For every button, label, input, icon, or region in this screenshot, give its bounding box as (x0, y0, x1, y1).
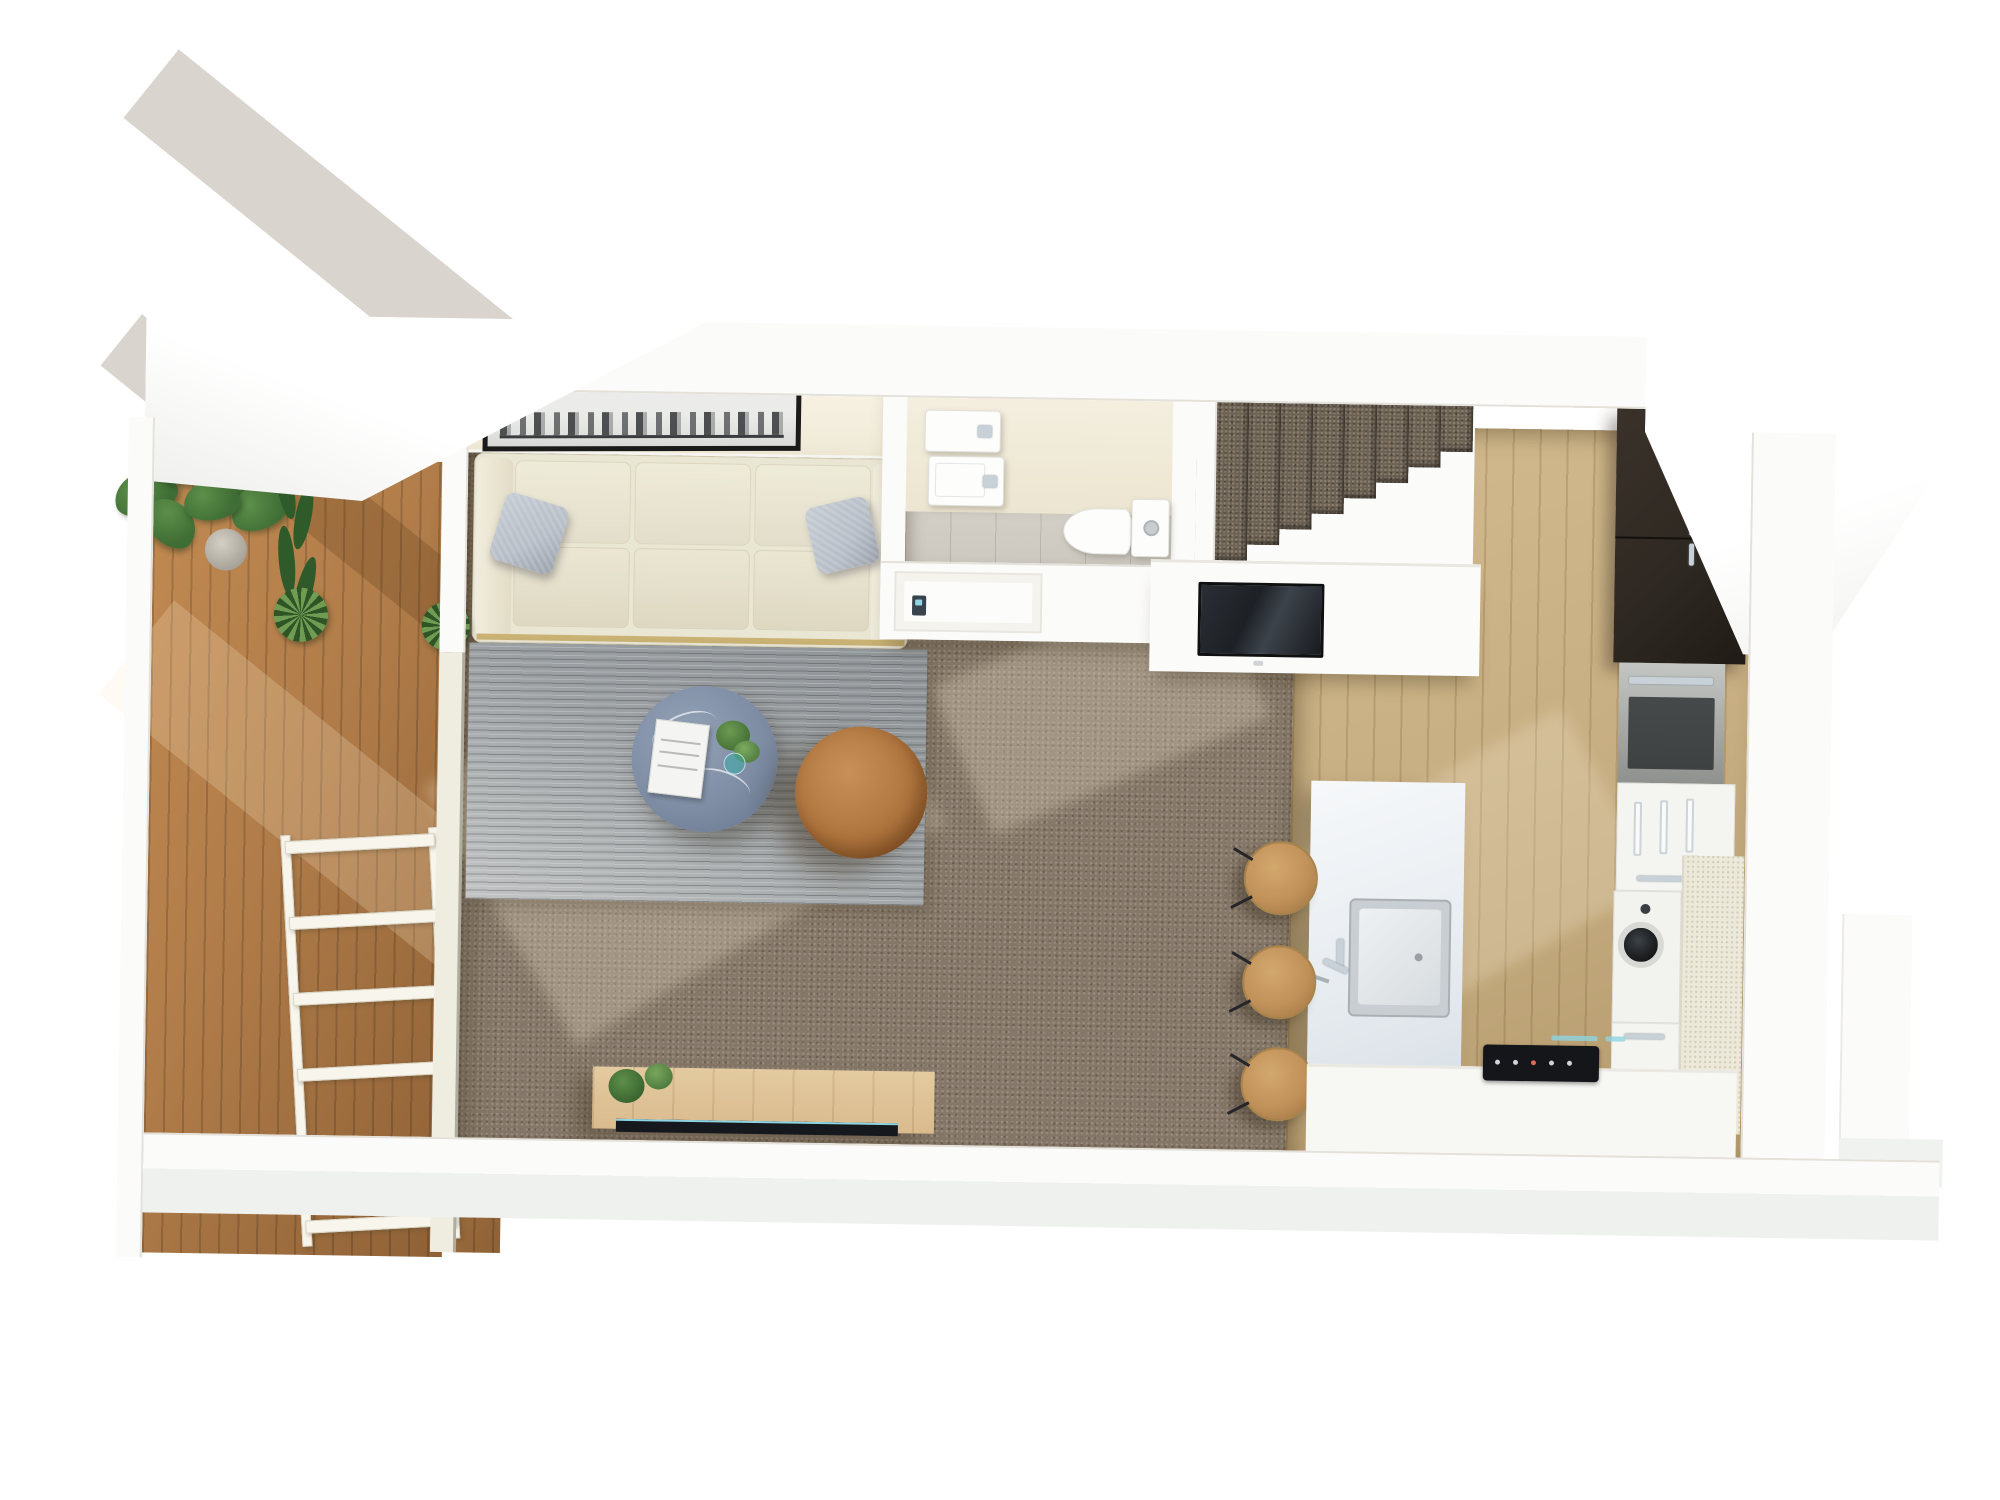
oven-glass (1628, 697, 1715, 770)
right-wall (1740, 433, 1836, 1179)
washer-control-icon (1640, 904, 1650, 914)
cooktop-control-icon (1567, 1061, 1572, 1066)
splashback-glint (1605, 1036, 1625, 1041)
basin-bowl (935, 463, 986, 498)
drain-icon (1415, 953, 1423, 961)
console-plant (644, 1063, 672, 1089)
washing-machine (1612, 890, 1682, 1023)
cooktop-control-icon (1531, 1060, 1536, 1065)
stair-step (1376, 405, 1409, 483)
cabinet-handle-icon (1689, 544, 1694, 566)
bathroom-south-wall (880, 561, 1195, 644)
induction-cooktop (1483, 1044, 1600, 1082)
cooktop-control-icon (1549, 1060, 1554, 1065)
sink-basin (1358, 908, 1441, 1005)
wall-basin-upper (925, 410, 1002, 453)
cabinet-handle-icon (1633, 802, 1642, 856)
island-sink (1348, 898, 1452, 1018)
floorplan-render: 3D floor plan render — studio apartment … (0, 0, 2000, 1500)
cabinet-handle-icon (1685, 799, 1694, 853)
right-outer-column (1839, 914, 1913, 1155)
wall-tv (1197, 582, 1324, 658)
media-console (592, 1066, 935, 1133)
under-counter-cabinet (1611, 1022, 1680, 1075)
faucet-icon (978, 425, 992, 437)
railing-bar (289, 909, 439, 930)
sofa-back-cushion (634, 462, 751, 546)
sofa-seat-cushion (633, 548, 750, 630)
table-vase (723, 752, 745, 774)
cooktop-control-icon (1513, 1060, 1518, 1065)
flush-button-icon (1143, 520, 1159, 536)
plant-pot (205, 528, 248, 571)
washer-door-icon (1618, 922, 1665, 969)
railing-bar (297, 1061, 447, 1082)
sofa (471, 452, 910, 649)
oven-handle-icon (1629, 677, 1713, 685)
hallway-bulkhead (1149, 559, 1481, 676)
tv-sensor-icon (1253, 661, 1263, 666)
faucet-icon (983, 475, 997, 487)
stair-step (1441, 406, 1474, 452)
stair-steps (1215, 402, 1474, 568)
toilet (1063, 508, 1132, 555)
railing-bar (293, 985, 443, 1006)
splashback-glint (1551, 1035, 1597, 1041)
kitchen-island (1306, 781, 1465, 1096)
toilet-cistern (1131, 499, 1170, 558)
railing-bar (285, 833, 435, 854)
cooktop-control-icon (1495, 1060, 1500, 1065)
stair-step (1408, 405, 1441, 467)
stair-step (1279, 403, 1313, 529)
console-plant (608, 1069, 645, 1104)
door-keypad (912, 595, 926, 615)
stair-step (1344, 404, 1377, 498)
apartment-plan (0, 0, 2000, 1500)
cabinet-handle-icon (1659, 800, 1668, 854)
wall-basin-lower (928, 456, 1005, 507)
stainless-wall-oven (1617, 663, 1725, 785)
stair-step (1247, 403, 1281, 545)
table-book (647, 719, 709, 799)
stair-step (1215, 402, 1249, 560)
stair-step (1312, 404, 1346, 514)
bathroom-door (894, 571, 1043, 633)
drawer-handle-icon (1624, 1034, 1664, 1040)
faucet-spout-icon (1322, 958, 1348, 974)
